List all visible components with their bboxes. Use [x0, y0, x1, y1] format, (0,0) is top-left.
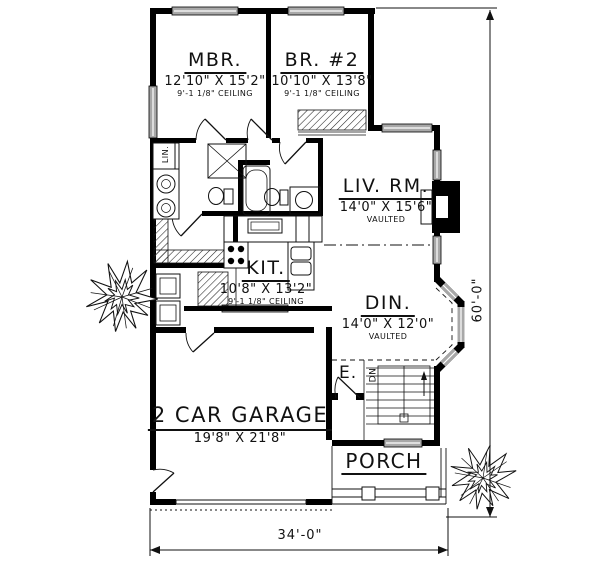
- room-dims-kitchen: 10'8" X 13'2": [220, 283, 312, 298]
- room-ceiling-living: VAULTED: [339, 216, 433, 225]
- linen-closet-label: LIN.: [161, 146, 170, 163]
- room-label-porch: PORCH: [341, 450, 426, 475]
- room-ceiling-dining: VAULTED: [342, 333, 434, 342]
- room-label-dining: DIN. 14'0" X 12'0" VAULTED: [342, 293, 434, 342]
- floor-plan-page: MBR. 12'10" X 15'2" 9'-1 1/8" CEILING BR…: [0, 0, 600, 564]
- entry-label: E.: [339, 363, 357, 383]
- room-name-mbr: MBR.: [184, 50, 246, 74]
- room-label-kitchen: KIT. 10'8" X 13'2" 9'-1 1/8" CEILING: [220, 258, 312, 307]
- room-name-living: LIV. RM.: [339, 176, 433, 200]
- room-ceiling-mbr: 9'-1 1/8" CEILING: [164, 90, 265, 99]
- room-name-porch: PORCH: [341, 450, 426, 475]
- room-ceiling-br2: 9'-1 1/8" CEILING: [271, 90, 372, 99]
- room-label-living: LIV. RM. 14'0" X 15'6" VAULTED: [339, 176, 433, 225]
- room-name-br2: BR. #2: [281, 50, 364, 74]
- overall-width-dimension: 34'-0": [277, 528, 322, 543]
- overall-height-dimension: 60'-0": [471, 277, 486, 322]
- room-dims-br2: 10'10" X 13'8": [271, 75, 372, 90]
- room-name-kitchen: KIT.: [242, 258, 289, 282]
- garage-door: [150, 500, 332, 510]
- room-label-garage: 2 CAR GARAGE 19'8" X 21'8": [148, 404, 332, 446]
- room-label-br2: BR. #2 10'10" X 13'8" 9'-1 1/8" CEILING: [271, 50, 372, 99]
- room-dims-garage: 19'8" X 21'8": [148, 432, 332, 447]
- room-name-garage: 2 CAR GARAGE: [148, 404, 332, 431]
- room-name-dining: DIN.: [361, 293, 416, 317]
- room-label-mbr: MBR. 12'10" X 15'2" 9'-1 1/8" CEILING: [164, 50, 265, 99]
- room-ceiling-kitchen: 9'-1 1/8" CEILING: [220, 298, 312, 307]
- room-dims-dining: 14'0" X 12'0": [342, 318, 434, 333]
- stairs-dn-label: DN: [368, 368, 378, 383]
- room-dims-living: 14'0" X 15'6": [339, 201, 433, 216]
- room-dims-mbr: 12'10" X 15'2": [164, 75, 265, 90]
